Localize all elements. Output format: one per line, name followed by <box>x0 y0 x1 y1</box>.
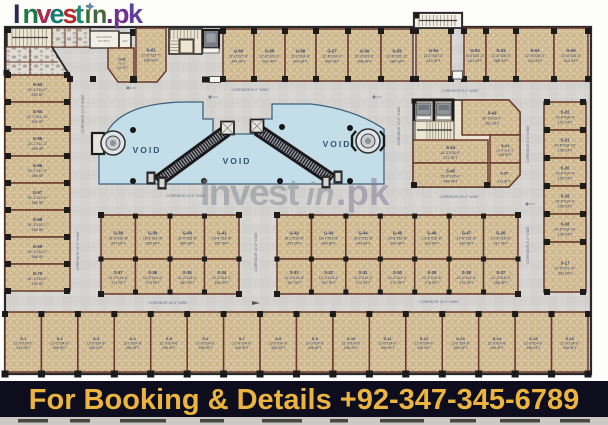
svg-text:k: k <box>128 0 144 29</box>
svg-text:S-35: S-35 <box>183 270 193 275</box>
svg-text:24'-1"X11'-0": 24'-1"X11'-0" <box>28 196 48 200</box>
svg-text:G-26: G-26 <box>496 231 506 236</box>
svg-text:15'-0"X23'-0": 15'-0"X23'-0" <box>441 175 462 179</box>
svg-text:10'-5"X18'-10": 10'-5"X18'-10" <box>554 228 576 232</box>
svg-text:12'-6"X22'-11": 12'-6"X22'-11" <box>386 55 408 59</box>
svg-text:240 SFT: 240 SFT <box>390 241 405 245</box>
svg-text:12'-0"X24'-6": 12'-0"X24'-6" <box>160 342 180 346</box>
svg-text:14'-8"X15'-8": 14'-8"X15'-8" <box>456 237 477 241</box>
svg-text:12'-2"X15'-4": 12'-2"X15'-4" <box>177 276 198 280</box>
svg-text:260 SFT: 260 SFT <box>321 241 336 245</box>
svg-text:300 SFT: 300 SFT <box>325 59 340 63</box>
svg-text:S-2: S-2 <box>57 336 64 341</box>
svg-text:295 SFT: 295 SFT <box>144 58 159 62</box>
svg-text:S-21: S-21 <box>561 138 571 143</box>
svg-text:333 SFT: 333 SFT <box>558 271 573 275</box>
svg-text:10'-5"X14'-4": 10'-5"X14'-4" <box>555 200 576 204</box>
svg-text:295 SFT: 295 SFT <box>199 346 214 350</box>
svg-text:G-64: G-64 <box>33 109 43 114</box>
svg-text:12'-6"X24'-0": 12'-6"X24'-0" <box>322 55 343 59</box>
svg-text:257 SFT: 257 SFT <box>215 241 230 245</box>
svg-text:12'-2"X14'-6": 12'-2"X14'-6" <box>456 276 477 280</box>
svg-text:15'-8"X15'-8": 15'-8"X15'-8" <box>388 237 409 241</box>
svg-text:237 SFT: 237 SFT <box>287 241 302 245</box>
svg-text:G-45: G-45 <box>393 231 403 236</box>
svg-text:in: in <box>306 176 334 212</box>
svg-text:12'-4"X25'-4": 12'-4"X25'-4" <box>561 54 582 58</box>
svg-text:186 SFT: 186 SFT <box>494 281 509 285</box>
svg-text:G-67: G-67 <box>33 190 43 195</box>
svg-text:S-28: S-28 <box>462 270 472 275</box>
svg-text:295 SFT: 295 SFT <box>162 346 177 350</box>
svg-text:G-65: G-65 <box>33 136 43 141</box>
svg-text:150 SFT: 150 SFT <box>558 204 573 208</box>
svg-text:371 SFT: 371 SFT <box>443 156 458 160</box>
svg-text:150 SFT: 150 SFT <box>558 176 573 180</box>
svg-text:16'-2"X23'-0": 16'-2"X23'-0" <box>441 151 462 155</box>
svg-text:12'-0"X24'-6": 12'-0"X24'-6" <box>487 342 507 346</box>
svg-text:VOID: VOID <box>323 139 352 149</box>
svg-text:S-9: S-9 <box>312 336 319 341</box>
svg-text:15'-2"X15'-8": 15'-2"X15'-8" <box>284 237 305 241</box>
svg-text:196 SFT: 196 SFT <box>558 232 573 236</box>
svg-text:295 SFT: 295 SFT <box>126 346 141 350</box>
svg-text:196 SFT: 196 SFT <box>558 148 573 152</box>
svg-text:G-69: G-69 <box>33 244 43 249</box>
svg-text:306 SFT: 306 SFT <box>563 346 578 350</box>
svg-text:G-50: G-50 <box>566 48 576 53</box>
svg-text:8'-0"X20'-2": 8'-0"X20'-2" <box>466 54 485 58</box>
svg-text:G-41: G-41 <box>217 231 227 236</box>
svg-text:15'-8"X15'-8": 15'-8"X15'-8" <box>143 237 164 241</box>
svg-text:S-17: S-17 <box>561 261 571 266</box>
svg-text:G-63: G-63 <box>33 82 43 87</box>
svg-text:131 SFT: 131 SFT <box>116 66 128 70</box>
svg-text:172 SFT: 172 SFT <box>390 281 405 285</box>
svg-text:G-47: G-47 <box>462 231 472 236</box>
svg-text:15'-0"X22'-1": 15'-0"X22'-1" <box>482 117 503 121</box>
svg-text:326 SFT: 326 SFT <box>235 346 250 350</box>
svg-text:247 SFT: 247 SFT <box>111 241 126 245</box>
svg-text:184 SFT: 184 SFT <box>215 281 230 285</box>
svg-text:CORRIDOR 16'-0" WIDE: CORRIDOR 16'-0" WIDE <box>148 301 188 305</box>
svg-text:S-13: S-13 <box>456 336 465 341</box>
svg-text:S-11: S-11 <box>383 336 392 341</box>
svg-text:S-30: S-30 <box>393 270 403 275</box>
svg-text:G-39: G-39 <box>148 231 158 236</box>
svg-text:t: t <box>75 0 84 29</box>
svg-text:230 SFT: 230 SFT <box>459 241 474 245</box>
svg-text:179 SFT: 179 SFT <box>146 281 161 285</box>
svg-text:G-44: G-44 <box>358 231 368 236</box>
svg-text:G-53: G-53 <box>470 48 480 53</box>
svg-text:S-44: S-44 <box>446 145 456 150</box>
svg-text:15'-8"X15'-8": 15'-8"X15'-8" <box>353 237 374 241</box>
svg-text:210 SFT: 210 SFT <box>425 241 440 245</box>
svg-text:S-12: S-12 <box>420 336 429 341</box>
svg-text:S-7: S-7 <box>239 336 246 341</box>
svg-text:298 SFT: 298 SFT <box>308 346 323 350</box>
svg-text:12'-6"X23'-7": 12'-6"X23'-7" <box>141 54 162 58</box>
svg-text:12'-6"X27'-4": 12'-6"X27'-4" <box>229 55 250 59</box>
svg-text:290 SF: 290 SF <box>31 282 44 286</box>
svg-text:345 SFT: 345 SFT <box>443 179 458 183</box>
svg-text:S-32: S-32 <box>324 270 334 275</box>
svg-text:.pk: .pk <box>336 172 390 213</box>
svg-text:12'-6"X24'-0": 12'-6"X24'-0" <box>291 55 312 59</box>
svg-text:24'-1"X11'-0": 24'-1"X11'-0" <box>28 250 48 254</box>
svg-text:For Booking & Details +92-347-: For Booking & Details +92-347-345-6789 <box>29 384 579 416</box>
svg-text:286 SFT: 286 SFT <box>390 59 405 63</box>
svg-text:161 SFT: 161 SFT <box>468 59 483 63</box>
svg-text:24'-1"X11'-0": 24'-1"X11'-0" <box>28 169 48 173</box>
svg-text:G-59: G-59 <box>265 49 275 54</box>
svg-text:295 SFT: 295 SFT <box>89 346 104 350</box>
svg-text:10'-5"X31'-11": 10'-5"X31'-11" <box>554 267 576 271</box>
svg-text:S-25: S-25 <box>500 171 508 175</box>
svg-text:S-5: S-5 <box>166 336 173 341</box>
svg-text:G-38: G-38 <box>114 231 124 236</box>
svg-text:12'-0"X24'-6": 12'-0"X24'-6" <box>50 342 70 346</box>
svg-text:G-70: G-70 <box>33 271 43 276</box>
svg-text:12'-0"X24'-6": 12'-0"X24'-6" <box>415 342 435 346</box>
svg-text:16'-4"X15'-8": 16'-4"X15'-8" <box>319 237 340 241</box>
svg-text:LIFT: LIFT <box>122 39 128 43</box>
svg-text:12'-6"X23'-0": 12'-6"X23'-0" <box>355 55 376 59</box>
svg-text:S-43: S-43 <box>488 111 498 116</box>
svg-text:299 SFT: 299 SFT <box>490 346 505 350</box>
svg-text:24'-1"X12'-0": 24'-1"X12'-0" <box>28 277 49 281</box>
svg-text:172 SFT: 172 SFT <box>356 281 371 285</box>
svg-text:176 SFT: 176 SFT <box>459 281 474 285</box>
svg-text:CORRIDOR 8'-0" WIDE: CORRIDOR 8'-0" WIDE <box>441 89 479 93</box>
svg-text:G-56: G-56 <box>360 49 370 54</box>
svg-text:266 SF: 266 SF <box>31 201 44 205</box>
svg-text:S-16: S-16 <box>566 336 575 341</box>
svg-text:G-57: G-57 <box>327 49 337 54</box>
svg-text:174 SFT: 174 SFT <box>111 281 126 285</box>
svg-text:21'-7"X11'-10": 21'-7"X11'-10" <box>27 115 49 119</box>
svg-text:10'-0"X16'-3": 10'-0"X16'-3" <box>496 149 514 153</box>
svg-text:167 SFT: 167 SFT <box>287 281 302 285</box>
svg-text:I: I <box>13 0 21 29</box>
svg-text:S-33: S-33 <box>290 270 300 275</box>
svg-text:VOID: VOID <box>223 156 252 166</box>
svg-text:12'-0"X24'-6": 12'-0"X24'-6" <box>305 342 325 346</box>
svg-text:12'-2"X14'-6": 12'-2"X14'-6" <box>108 276 129 280</box>
svg-text:262 SFT: 262 SFT <box>262 59 277 63</box>
svg-text:266 SF: 266 SF <box>31 174 44 178</box>
svg-text:10'-5"X18'-10": 10'-5"X18'-10" <box>554 144 576 148</box>
svg-text:S-29: S-29 <box>427 270 437 275</box>
svg-text:10'-5"X18'-3": 10'-5"X18'-3" <box>555 116 576 120</box>
svg-text:12'-2"X15'-1": 12'-2"X15'-1" <box>212 276 233 280</box>
svg-text:S-19: S-19 <box>561 194 571 199</box>
svg-text:G-40: G-40 <box>183 231 193 236</box>
svg-text:260 SFT: 260 SFT <box>180 241 195 245</box>
svg-text:G-51: G-51 <box>530 48 540 53</box>
svg-text:G-58: G-58 <box>296 49 306 54</box>
svg-text:AHU ROOM: AHU ROOM <box>96 35 112 39</box>
svg-text:S-45: S-45 <box>446 169 456 174</box>
svg-text:12'-0"X24'-6": 12'-0"X24'-6" <box>196 342 216 346</box>
svg-text:250 SFT: 250 SFT <box>146 241 161 245</box>
svg-text:S-37: S-37 <box>114 270 124 275</box>
svg-text:12'-0"X24'-6": 12'-0"X24'-6" <box>560 342 580 346</box>
svg-text:12'-0"X24'-6": 12'-0"X24'-6" <box>378 342 398 346</box>
svg-text:24'-1"X11'-0": 24'-1"X11'-0" <box>28 88 48 92</box>
svg-text:288 SFT: 288 SFT <box>494 59 509 63</box>
svg-text:12'-2"X15'-4": 12'-2"X15'-4" <box>319 276 340 280</box>
svg-text:269 SF: 269 SF <box>31 147 44 151</box>
svg-text:G-54: G-54 <box>429 48 439 53</box>
svg-text:S-3: S-3 <box>93 336 100 341</box>
svg-text:313 SFT: 313 SFT <box>16 346 31 350</box>
svg-text:296 SFT: 296 SFT <box>344 346 359 350</box>
svg-text:243 SFT: 243 SFT <box>426 59 441 63</box>
svg-text:G-68: G-68 <box>33 217 43 222</box>
svg-text:CORRIDOR 8'-0" WIDE: CORRIDOR 8'-0" WIDE <box>526 226 530 264</box>
svg-text:12'-0"X20'-3": 12'-0"X20'-3" <box>424 54 445 58</box>
svg-text:12'-6"X21'-0": 12'-6"X21'-0" <box>260 55 281 59</box>
svg-text:16'-4"X15'-8": 16'-4"X15'-8" <box>177 237 198 241</box>
svg-text:CORRIDOR 12'-0" WIDE: CORRIDOR 12'-0" WIDE <box>254 232 258 272</box>
svg-text:G-60: G-60 <box>234 49 244 54</box>
svg-text:S-1: S-1 <box>20 336 27 341</box>
svg-text:266 SF: 266 SF <box>31 255 44 259</box>
svg-text:12'-2"X14'-6": 12'-2"X14'-6" <box>143 276 164 280</box>
svg-text:S-31: S-31 <box>359 270 369 275</box>
svg-text:G-46: G-46 <box>427 231 437 236</box>
svg-text:12'-2"X15'-3": 12'-2"X15'-3" <box>491 276 512 280</box>
svg-text:24'-1"X11'-2": 24'-1"X11'-2" <box>28 142 48 146</box>
svg-text:11'-4"X25'-5": 11'-4"X25'-5" <box>491 54 511 58</box>
svg-text:S-20: S-20 <box>561 166 571 171</box>
svg-text:CORRIDOR 10'-0" WIDE: CORRIDOR 10'-0" WIDE <box>81 94 85 134</box>
svg-text:G-43: G-43 <box>324 231 334 236</box>
svg-text:312 SFT: 312 SFT <box>564 59 579 63</box>
svg-text:S-4: S-4 <box>129 336 136 341</box>
svg-text:10'-5"X14'-4": 10'-5"X14'-4" <box>555 172 576 176</box>
svg-text:187 SFT: 187 SFT <box>321 281 336 285</box>
svg-text:G-52: G-52 <box>496 48 506 53</box>
svg-text:CORRIDOR 10'-0" WIDE: CORRIDOR 10'-0" WIDE <box>439 195 479 199</box>
svg-text:12'-0"X24'-6": 12'-0"X24'-6" <box>451 342 471 346</box>
svg-text:260 SF: 260 SF <box>31 93 44 97</box>
svg-text:141 SFT: 141 SFT <box>498 180 510 184</box>
svg-text:S-10: S-10 <box>347 336 356 341</box>
svg-text:12'-2"X13'-8": 12'-2"X13'-8" <box>284 276 305 280</box>
svg-text:256 SF: 256 SF <box>31 228 44 232</box>
svg-text:n: n <box>92 1 107 29</box>
svg-text:262 SF: 262 SF <box>31 120 44 124</box>
svg-text:S-24: S-24 <box>501 144 510 148</box>
svg-text:S-34: S-34 <box>217 270 227 275</box>
svg-text:324 SFT: 324 SFT <box>528 59 543 63</box>
svg-text:CORRIDOR 16'-0" WIDE: CORRIDOR 16'-0" WIDE <box>419 300 459 304</box>
svg-text:12'-0"X24'-6": 12'-0"X24'-6" <box>269 342 289 346</box>
svg-text:187 SFT: 187 SFT <box>180 281 195 285</box>
svg-text:12'-2"X14'-6": 12'-2"X14'-6" <box>422 276 443 280</box>
svg-text:CORRIDOR 8'-0" WIDE: CORRIDOR 8'-0" WIDE <box>526 125 530 163</box>
svg-text:176 SFT: 176 SFT <box>425 281 440 285</box>
svg-text:S-6: S-6 <box>202 336 209 341</box>
svg-text:12'-0"X24'-6": 12'-0"X24'-6" <box>14 342 34 346</box>
svg-text:296 SFT: 296 SFT <box>381 346 396 350</box>
svg-text:12'-2"X14'-2": 12'-2"X14'-2" <box>353 276 374 280</box>
svg-text:CORRIDOR 10'-0" WIDE: CORRIDOR 10'-0" WIDE <box>397 106 401 146</box>
svg-text:288 SFT: 288 SFT <box>357 59 372 63</box>
svg-text:S-22: S-22 <box>561 110 571 115</box>
svg-text:296 SFT: 296 SFT <box>454 346 469 350</box>
svg-text:G-66: G-66 <box>33 163 43 168</box>
svg-text:14'-0"X15'-8": 14'-0"X15'-8" <box>491 237 512 241</box>
svg-text:296 SFT: 296 SFT <box>417 346 432 350</box>
svg-text:331 SFT: 331 SFT <box>485 121 500 125</box>
svg-text:CORRIDOR 10'-0" WIDE: CORRIDOR 10'-0" WIDE <box>76 231 80 271</box>
svg-text:295 SFT: 295 SFT <box>53 346 68 350</box>
svg-text:12'-9"X25'-5": 12'-9"X25'-5" <box>525 54 546 58</box>
svg-text:12'-0"X24'-6": 12'-0"X24'-6" <box>123 342 143 346</box>
svg-text:G-55: G-55 <box>392 49 402 54</box>
svg-text:341 SFT: 341 SFT <box>231 59 246 63</box>
svg-text:326 SFT: 326 SFT <box>271 346 286 350</box>
svg-text:163 SFT: 163 SFT <box>498 153 511 157</box>
svg-text:15'-8"X15'-8": 15'-8"X15'-8" <box>108 237 129 241</box>
svg-text:G-42: G-42 <box>290 231 300 236</box>
svg-text:12'-2"X14'-2": 12'-2"X14'-2" <box>388 276 409 280</box>
svg-text:CORRIDOR 8'-0" WIDE: CORRIDOR 8'-0" WIDE <box>231 88 269 92</box>
svg-text:S-18: S-18 <box>561 222 571 227</box>
svg-text:300 SFT: 300 SFT <box>293 59 308 63</box>
svg-text:12'-0"X24'-6": 12'-0"X24'-6" <box>232 342 252 346</box>
svg-text:S-8: S-8 <box>275 336 282 341</box>
svg-text:12'-0"X24'-6": 12'-0"X24'-6" <box>524 342 544 346</box>
svg-text:S-14: S-14 <box>493 336 502 341</box>
svg-text:12'-0"X24'-6": 12'-0"X24'-6" <box>342 342 362 346</box>
svg-text:Invest: Invest <box>200 172 299 213</box>
svg-text:298 SFT: 298 SFT <box>526 346 541 350</box>
svg-text:13'-8"X15'-8": 13'-8"X15'-8" <box>422 237 443 241</box>
svg-text:191 SFT: 191 SFT <box>558 120 573 124</box>
svg-text:12'-0"X24'-6": 12'-0"X24'-6" <box>87 342 107 346</box>
svg-text:VOID: VOID <box>133 145 162 155</box>
svg-text:S-27: S-27 <box>496 270 506 275</box>
svg-text:243 SFT: 243 SFT <box>356 241 371 245</box>
svg-text:217 SFT: 217 SFT <box>494 241 509 245</box>
svg-text:S-36: S-36 <box>148 270 158 275</box>
svg-text:24'-1"X10'-7": 24'-1"X10'-7" <box>28 223 49 227</box>
svg-text:16'-4"X15'-8": 16'-4"X15'-8" <box>212 237 233 241</box>
svg-text:G-61: G-61 <box>146 48 156 53</box>
svg-text:S-15: S-15 <box>529 336 538 341</box>
svg-text:10'-0"X8'-0": 10'-0"X8'-0" <box>98 40 111 43</box>
